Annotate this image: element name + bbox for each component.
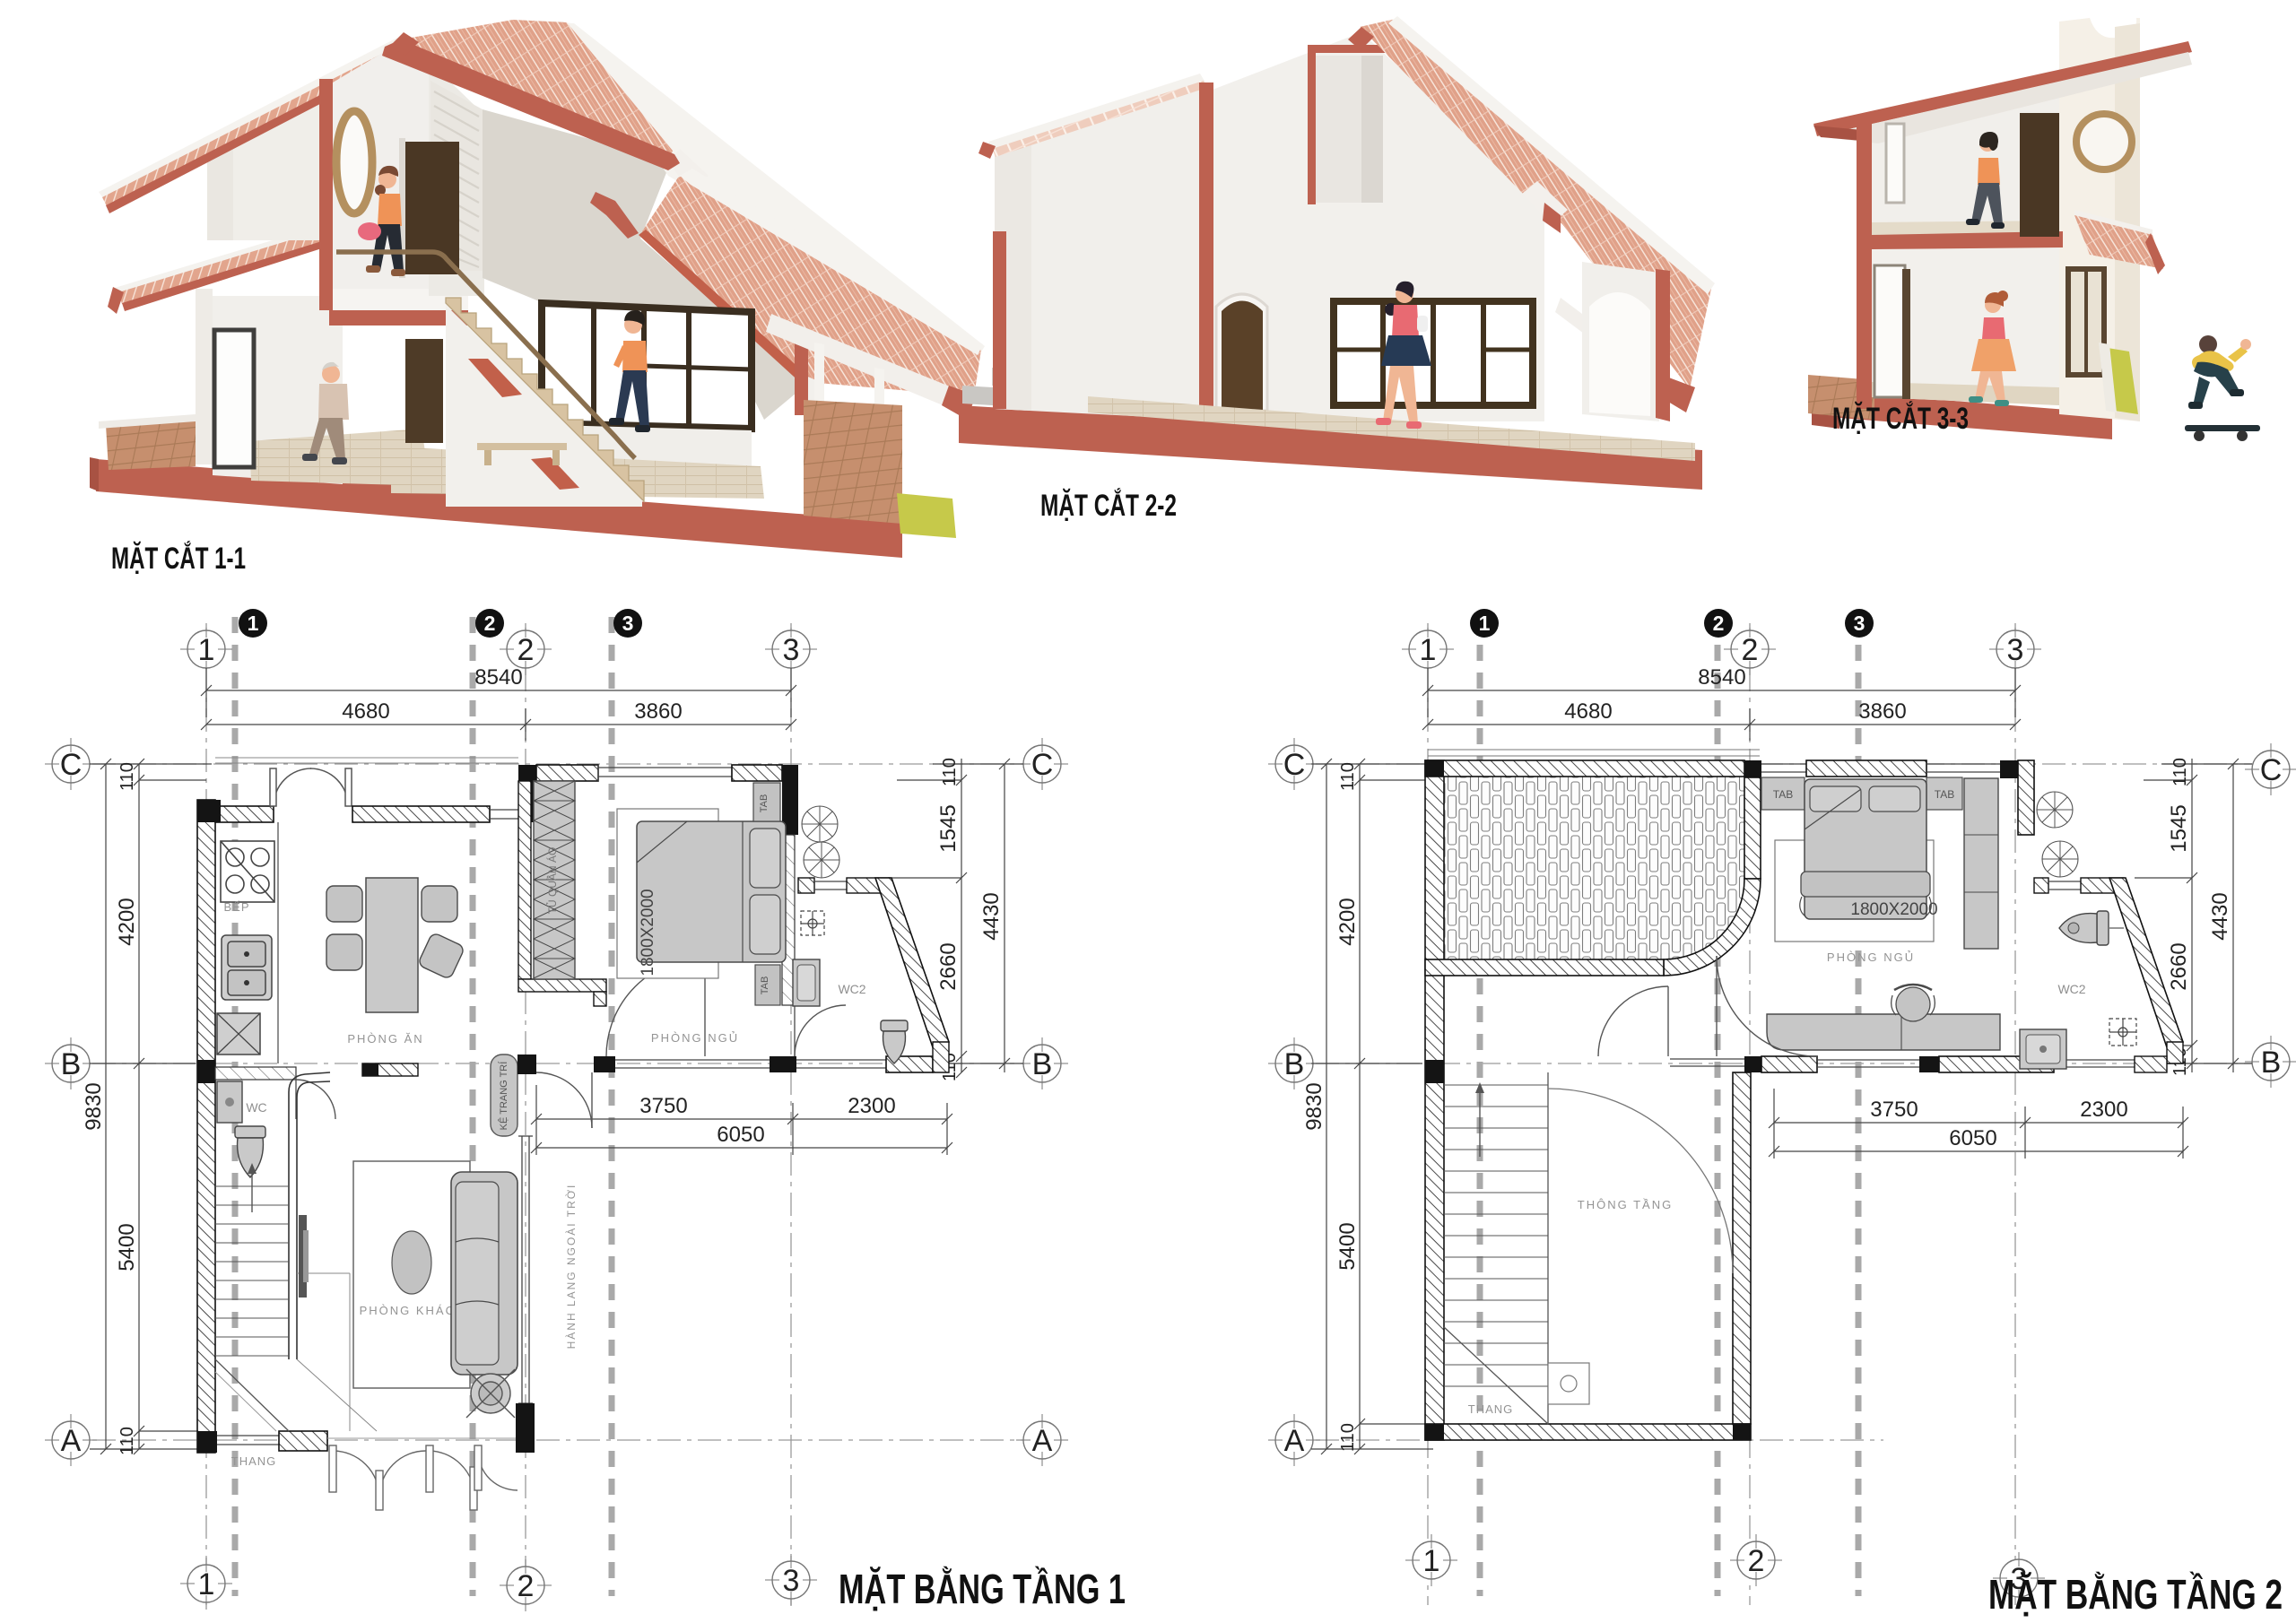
svg-text:2: 2 xyxy=(484,612,496,635)
svg-text:110: 110 xyxy=(1338,1423,1358,1452)
svg-text:4200: 4200 xyxy=(115,898,139,945)
svg-text:WC2: WC2 xyxy=(2057,982,2085,996)
svg-text:THANG: THANG xyxy=(231,1454,277,1468)
svg-text:WC2: WC2 xyxy=(838,982,865,996)
svg-text:1545: 1545 xyxy=(936,804,961,852)
svg-text:110: 110 xyxy=(1338,762,1358,791)
svg-text:1800X2000: 1800X2000 xyxy=(639,889,657,976)
svg-text:THÔNG TẦNG: THÔNG TẦNG xyxy=(1578,1198,1673,1211)
svg-text:110: 110 xyxy=(117,762,137,791)
svg-text:2660: 2660 xyxy=(2167,942,2191,990)
svg-text:9830: 9830 xyxy=(82,1082,106,1130)
svg-text:1: 1 xyxy=(248,612,259,635)
svg-text:TAB: TAB xyxy=(760,976,770,995)
svg-text:5400: 5400 xyxy=(115,1223,139,1271)
svg-text:1: 1 xyxy=(1479,612,1491,635)
svg-text:3750: 3750 xyxy=(639,1094,687,1118)
svg-text:3860: 3860 xyxy=(1858,699,1906,724)
svg-text:HÀNH LANG NGOÀI TRỜI: HÀNH LANG NGOÀI TRỜI xyxy=(564,1184,578,1350)
svg-text:110: 110 xyxy=(2170,758,2190,786)
svg-text:KỆ TRANG TRÍ: KỆ TRANG TRÍ xyxy=(498,1061,509,1131)
svg-text:5400: 5400 xyxy=(1335,1222,1360,1270)
svg-text:TỦ QUẦN ÁO: TỦ QUẦN ÁO xyxy=(545,847,559,915)
svg-text:PHÒNG ĂN: PHÒNG ĂN xyxy=(347,1032,423,1046)
svg-text:TAB: TAB xyxy=(759,794,770,813)
svg-text:MẶT CẮT 1-1: MẶT CẮT 1-1 xyxy=(111,542,246,576)
svg-text:MẶT CẮT 3-3: MẶT CẮT 3-3 xyxy=(1832,402,1969,436)
svg-text:4680: 4680 xyxy=(1564,699,1612,724)
svg-text:2300: 2300 xyxy=(2080,1098,2127,1122)
svg-text:1545: 1545 xyxy=(2167,804,2191,852)
svg-text:2660: 2660 xyxy=(936,942,961,990)
svg-text:3860: 3860 xyxy=(634,699,682,724)
svg-text:6050: 6050 xyxy=(717,1123,764,1147)
svg-text:4680: 4680 xyxy=(342,699,389,724)
svg-text:MẶT BẰNG TẦNG 1: MẶT BẰNG TẦNG 1 xyxy=(839,1566,1126,1612)
svg-text:PHÒNG NGỦ: PHÒNG NGỦ xyxy=(651,1031,739,1045)
svg-text:THANG: THANG xyxy=(1468,1402,1514,1416)
svg-text:6050: 6050 xyxy=(1949,1126,1996,1150)
svg-text:TAB: TAB xyxy=(1773,788,1793,801)
svg-text:8540: 8540 xyxy=(1698,665,1745,690)
svg-text:4430: 4430 xyxy=(979,892,1004,940)
svg-text:110: 110 xyxy=(940,758,960,786)
svg-text:3750: 3750 xyxy=(1870,1098,1918,1122)
svg-text:PHÒNG NGỦ: PHÒNG NGỦ xyxy=(1827,950,1915,964)
svg-text:8540: 8540 xyxy=(474,665,522,690)
svg-text:BẾP: BẾP xyxy=(223,900,249,914)
svg-text:110: 110 xyxy=(117,1427,137,1455)
svg-text:PHÒNG KHÁCH: PHÒNG KHÁCH xyxy=(360,1304,466,1317)
svg-text:TAB: TAB xyxy=(1935,788,1954,801)
svg-text:MẶT BẰNG TẦNG 2: MẶT BẰNG TẦNG 2 xyxy=(1988,1571,2283,1618)
svg-text:9830: 9830 xyxy=(1302,1082,1326,1130)
svg-text:4430: 4430 xyxy=(2208,892,2232,940)
svg-text:WC: WC xyxy=(246,1100,266,1115)
svg-text:4200: 4200 xyxy=(1335,898,1360,945)
svg-text:3: 3 xyxy=(1854,612,1865,635)
svg-text:MẶT CẮT 2-2: MẶT CẮT 2-2 xyxy=(1040,489,1177,523)
svg-text:2: 2 xyxy=(1713,612,1725,635)
svg-text:1800X2000: 1800X2000 xyxy=(1850,900,1937,919)
svg-text:3: 3 xyxy=(622,612,634,635)
svg-text:2300: 2300 xyxy=(848,1094,895,1118)
